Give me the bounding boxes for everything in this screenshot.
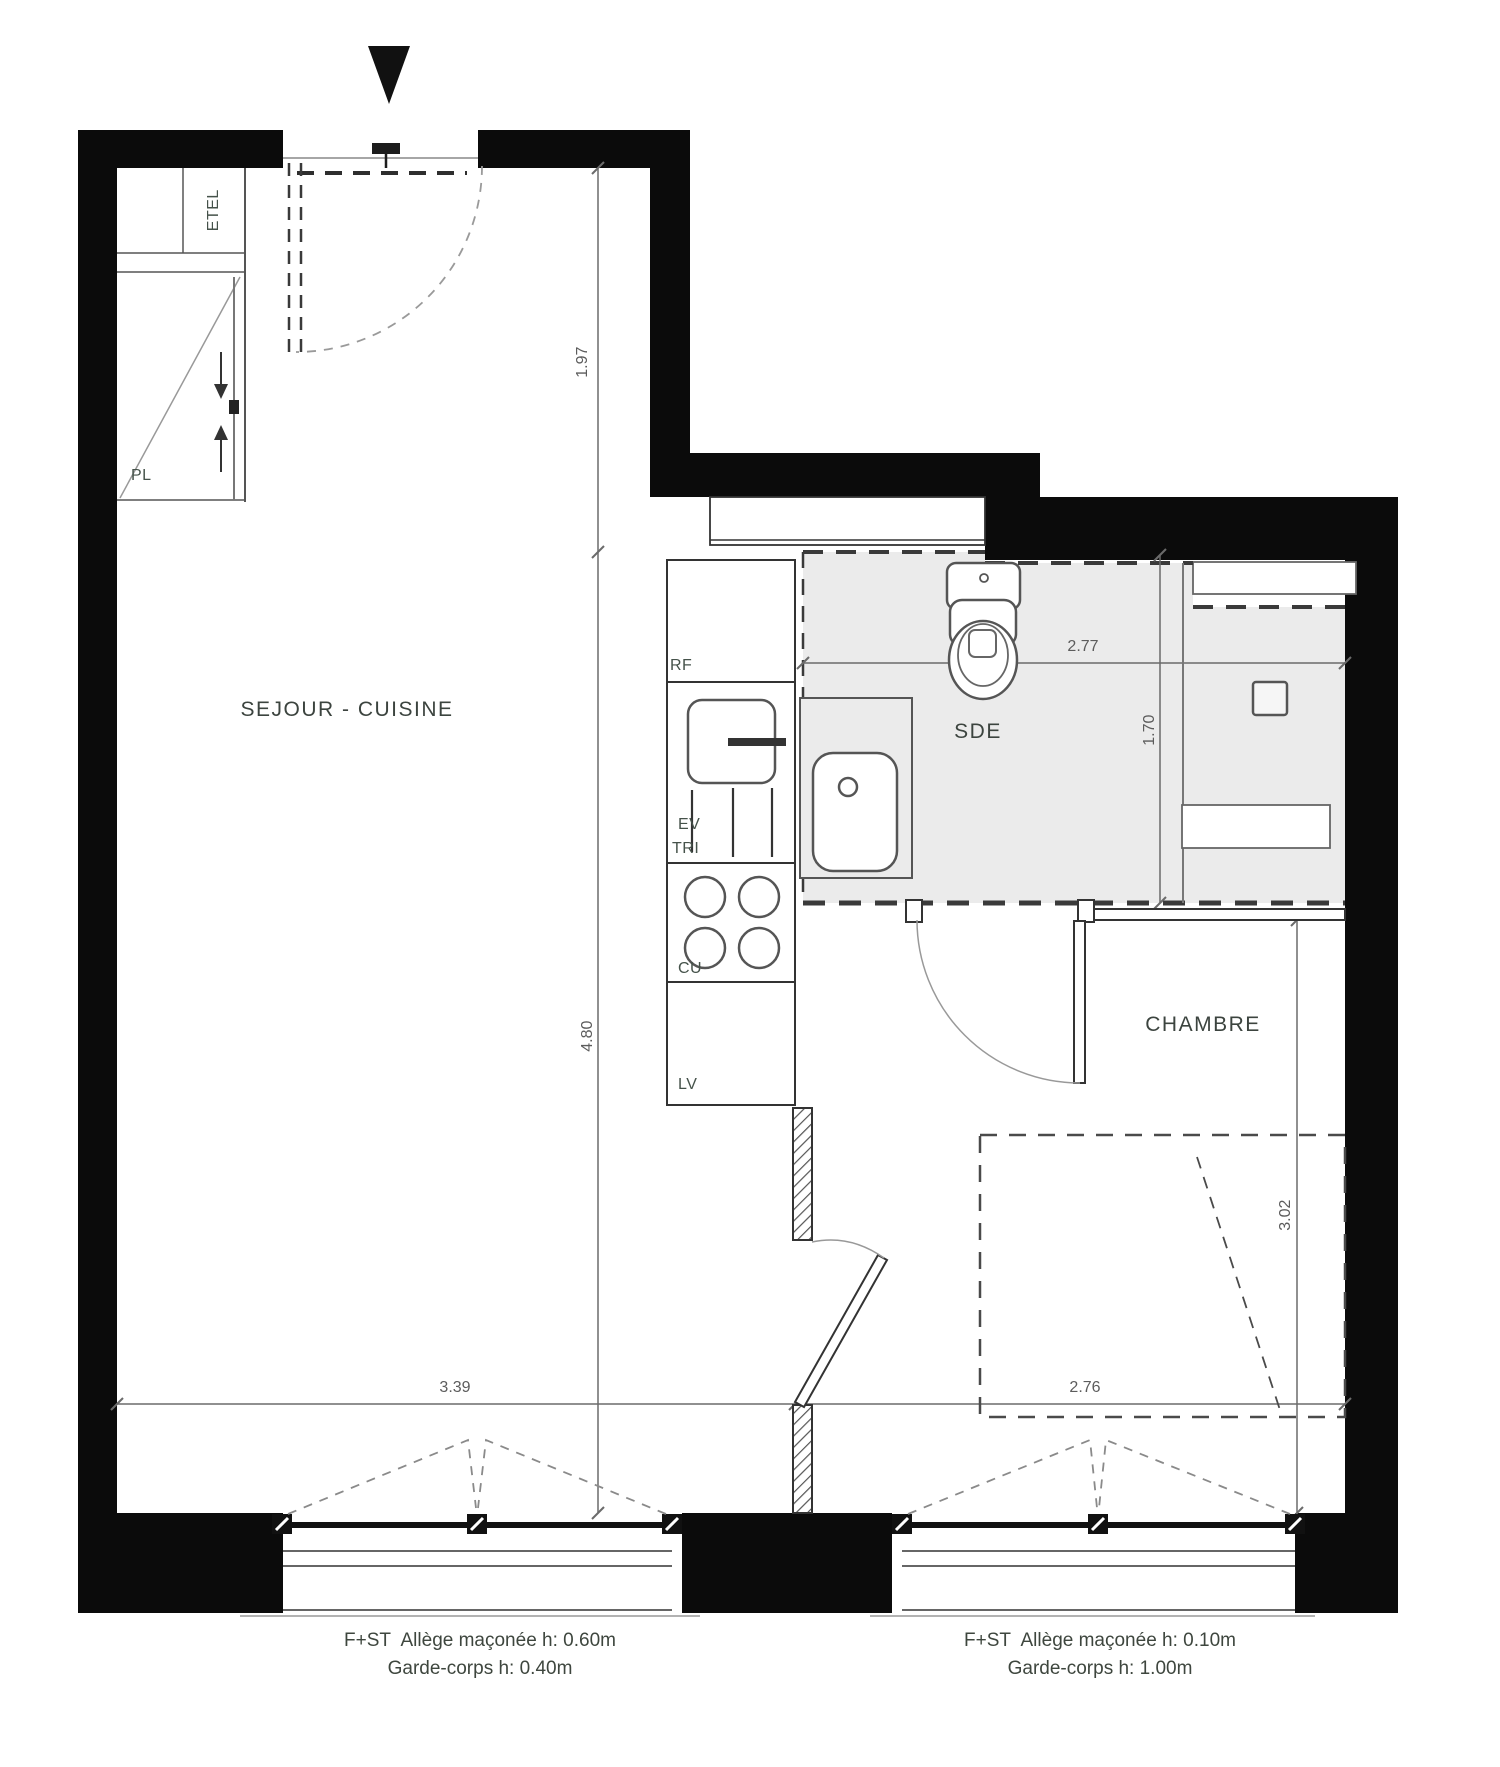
kitchen-label-lv: LV — [678, 1076, 697, 1094]
entry-closet — [117, 168, 245, 502]
window-note-left-line2: Garde-corps h: 0.40m — [280, 1658, 680, 1680]
floor-plan: SEJOUR - CUISINE SDE CHAMBRE ETEL PL RF … — [0, 0, 1500, 1767]
arrow-up-icon — [214, 425, 228, 440]
arrow-down-icon — [214, 384, 228, 399]
dimension-3-39: 3.39 — [415, 1379, 495, 1397]
room-label-sejour-cuisine: SEJOUR - CUISINE — [207, 698, 487, 722]
entrance-arrow-icon — [368, 46, 410, 104]
kitchen-label-cu: CU — [678, 960, 702, 978]
dimension-2-76: 2.76 — [1045, 1379, 1125, 1397]
dimension-2-77: 2.77 — [1043, 638, 1123, 656]
kitchen-label-rf: RF — [670, 657, 692, 675]
window-note-right-line2: Garde-corps h: 1.00m — [900, 1658, 1300, 1680]
window-opening-marks — [288, 1440, 1290, 1514]
room-label-chambre: CHAMBRE — [1103, 1013, 1303, 1037]
window-note-left-line1: F+ST Allège maçonée h: 0.60m — [280, 1630, 680, 1652]
closet-label-pl: PL — [131, 467, 152, 485]
dimension-1-70: 1.70 — [1141, 700, 1159, 760]
window-note-right-line1: F+ST Allège maçonée h: 0.10m — [900, 1630, 1300, 1652]
passage-door — [793, 1108, 887, 1513]
kitchen-label-tri: TRI — [672, 840, 699, 858]
shower-niche-window — [1193, 562, 1356, 594]
chambre-door — [906, 900, 1345, 1083]
closet-label-etel: ETEL — [205, 180, 223, 240]
bed — [980, 1135, 1345, 1417]
room-label-sde: SDE — [928, 720, 1028, 744]
toilet — [947, 563, 1020, 699]
dimension-1-97: 1.97 — [574, 332, 592, 392]
floorplan-drawing — [0, 0, 1500, 1767]
washbasin — [800, 698, 912, 878]
dimension-4-80: 4.80 — [579, 1006, 597, 1066]
kitchen-label-ev: EV — [678, 816, 700, 834]
entry-door — [283, 143, 482, 352]
dimension-3-02: 3.02 — [1277, 1185, 1295, 1245]
shower-drain-icon — [1253, 682, 1287, 715]
faucet-icon — [839, 778, 857, 796]
sde-window — [710, 497, 985, 545]
